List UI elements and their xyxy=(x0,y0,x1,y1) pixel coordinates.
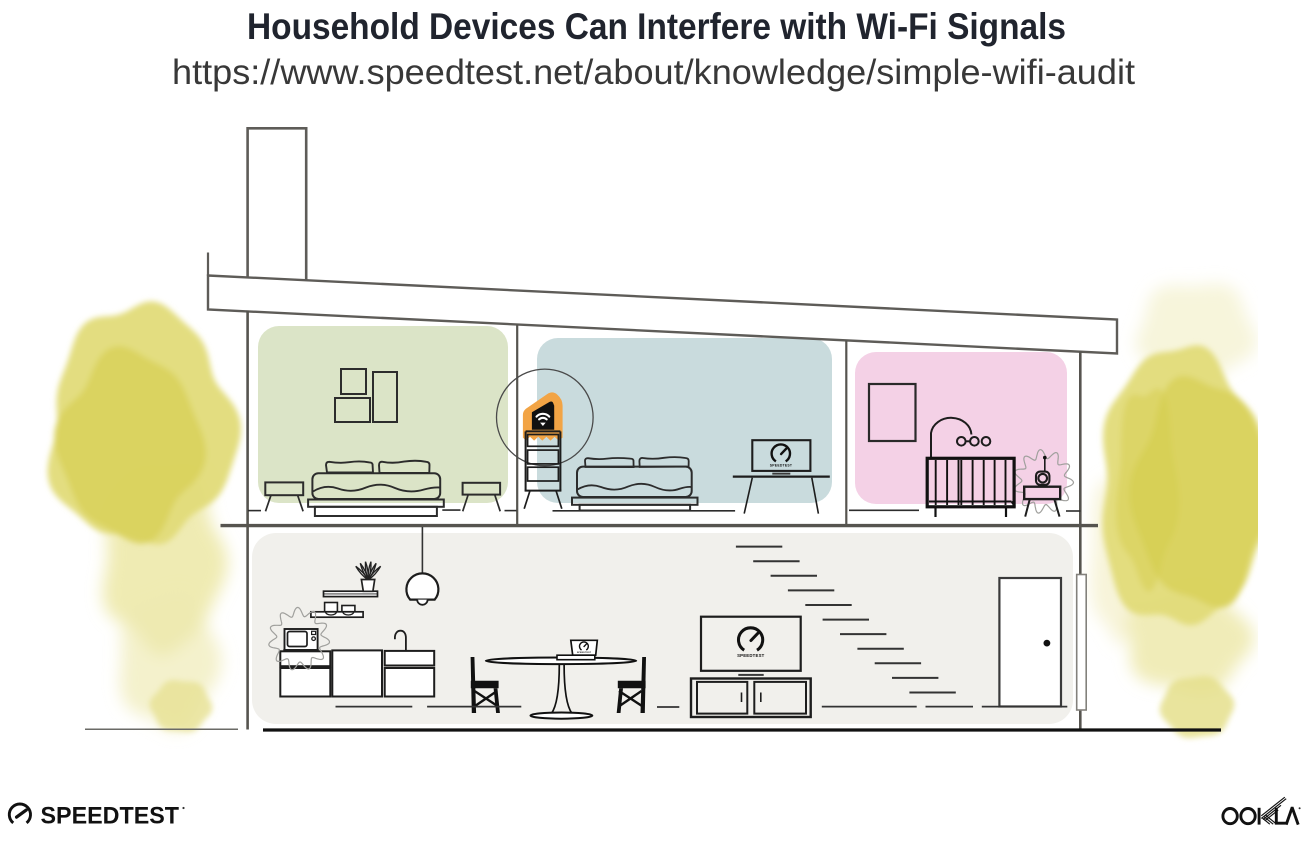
svg-text:https://www.speedtest.net/abou: https://www.speedtest.net/about/knowledg… xyxy=(172,53,1135,92)
svg-text:SPEEDTEST: SPEEDTEST xyxy=(577,652,592,654)
svg-text:SPEEDTEST: SPEEDTEST xyxy=(737,653,765,658)
svg-text:SPEEDTEST: SPEEDTEST xyxy=(770,464,793,468)
svg-text:SPEEDTEST: SPEEDTEST xyxy=(41,802,180,829)
svg-text:Household Devices Can Interfer: Household Devices Can Interfere with Wi-… xyxy=(247,6,1066,47)
